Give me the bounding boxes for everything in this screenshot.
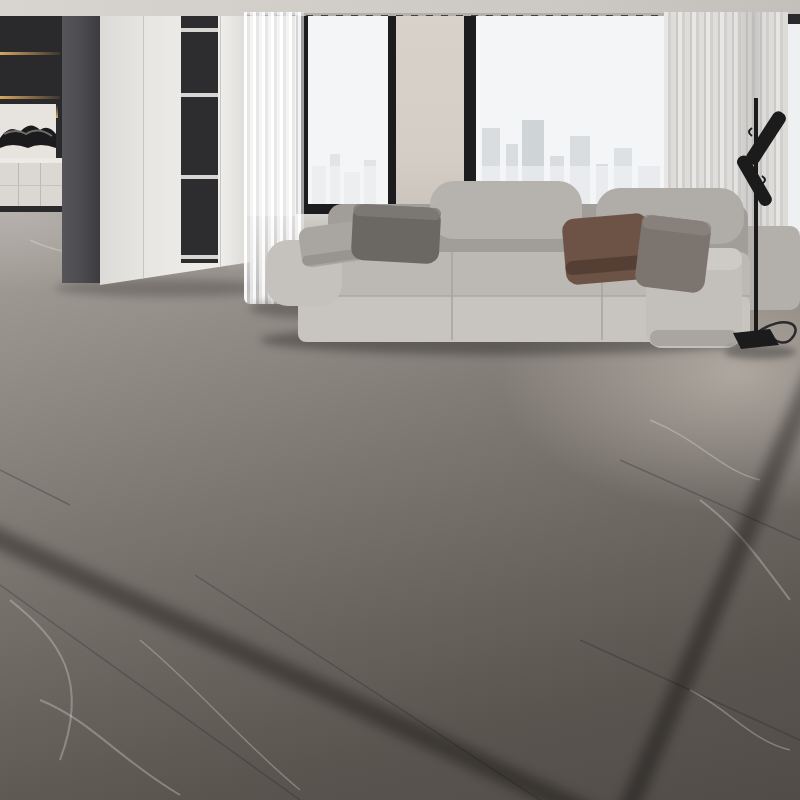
floor-lamp — [0, 0, 800, 800]
lamp-head-upper — [744, 109, 788, 167]
living-room-photo: { "image": { "kind": "product-photo", "s… — [0, 0, 800, 800]
lamp-pole — [754, 98, 758, 338]
lamp-shadow — [724, 345, 796, 359]
